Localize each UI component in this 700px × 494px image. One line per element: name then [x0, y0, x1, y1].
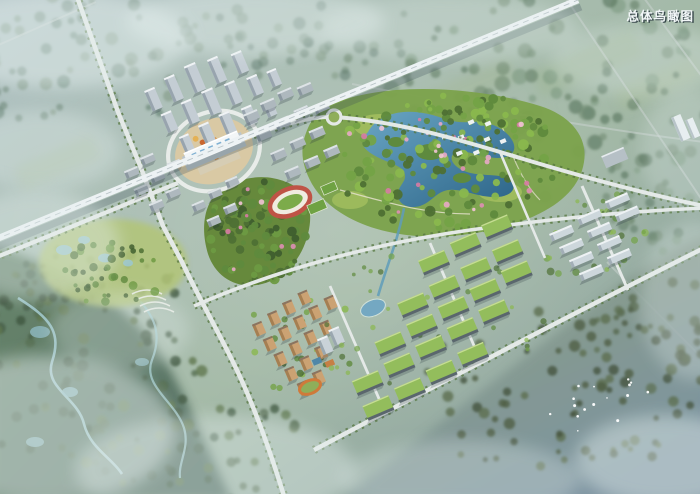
wetland-tree	[596, 382, 606, 392]
tree	[339, 343, 344, 348]
wetland-tree	[472, 375, 478, 381]
view-title-label: 总体鸟瞰图	[626, 9, 694, 24]
blossom-tree	[279, 244, 284, 249]
park-tree	[229, 218, 239, 228]
haze-tree	[496, 62, 509, 75]
wetland-tree	[178, 395, 188, 405]
blossom-tree	[527, 188, 533, 194]
wetland-tree	[668, 396, 679, 407]
park-tree	[236, 260, 244, 268]
haze-tree	[3, 86, 9, 92]
tree	[140, 258, 145, 263]
haze-tree	[634, 167, 640, 173]
haze-tree	[512, 69, 528, 85]
blossom-tree	[259, 199, 265, 205]
park-tree	[513, 134, 519, 140]
park-tree	[211, 208, 216, 213]
bird	[593, 386, 595, 388]
wetland-tree	[556, 449, 561, 454]
blossom-tree	[404, 137, 408, 141]
wetland-tree	[608, 365, 618, 375]
haze-tree	[551, 87, 563, 99]
park-tree	[427, 100, 432, 105]
wetland-tree	[629, 294, 638, 303]
park-tree	[511, 127, 517, 133]
park-tree	[241, 240, 246, 245]
wetland-tree	[556, 348, 562, 354]
park-tree	[344, 190, 350, 196]
blossom-tree	[385, 188, 391, 194]
tree	[555, 270, 562, 277]
haze-tree	[591, 95, 598, 102]
haze-tree	[469, 63, 480, 74]
tree	[151, 258, 156, 263]
park-tree	[264, 216, 272, 224]
wetland-tree	[504, 418, 515, 429]
tree	[491, 325, 496, 330]
haze-tree	[258, 57, 268, 67]
park-tree	[270, 263, 276, 269]
tree	[631, 237, 638, 244]
wetland-tree	[457, 430, 466, 439]
wetland-tree	[589, 318, 597, 326]
wetland-tree	[446, 408, 455, 417]
haze-tree	[630, 0, 640, 10]
tree	[342, 306, 349, 313]
tree	[370, 325, 375, 330]
wetland-tree	[479, 408, 490, 419]
wetland-tree	[189, 357, 197, 365]
tree	[324, 322, 329, 327]
birdseye-scene: 总体鸟瞰图 总体鸟瞰图	[0, 0, 700, 494]
tree	[547, 256, 552, 261]
park-tree	[445, 208, 453, 216]
tree	[335, 365, 339, 369]
wetland-tree	[502, 400, 510, 408]
park-tree	[529, 131, 535, 137]
park-tree	[415, 144, 424, 153]
bird	[627, 378, 629, 380]
blossom-tree	[246, 187, 250, 191]
blossom-tree	[436, 144, 440, 148]
park-tree	[382, 149, 391, 158]
park-tree	[251, 272, 258, 279]
park-tree	[493, 179, 500, 186]
bird	[549, 413, 551, 415]
blossom-tree	[485, 159, 490, 164]
wetland-tree	[521, 392, 529, 400]
park-tree	[424, 118, 430, 124]
park-tree	[490, 210, 498, 218]
wetland-tree	[572, 385, 578, 391]
blossom-tree	[439, 153, 444, 158]
haze-tree	[600, 115, 610, 125]
tree	[139, 248, 144, 253]
park-tree	[535, 118, 542, 125]
park-tree	[440, 93, 446, 99]
haze-tree	[332, 72, 339, 79]
tree	[547, 268, 555, 276]
tree	[119, 251, 126, 258]
blossom-tree	[245, 214, 248, 217]
haze-tree	[529, 95, 537, 103]
blossom-tree	[347, 131, 352, 136]
park-tree	[378, 210, 385, 217]
bird	[583, 408, 586, 411]
park-tree	[292, 235, 300, 243]
tree	[346, 361, 352, 367]
wetland-tree	[613, 329, 619, 335]
park-tree	[485, 102, 494, 111]
park-tree	[236, 245, 245, 254]
park-tree	[549, 175, 555, 181]
wetland-tree	[25, 338, 35, 348]
tree	[388, 253, 394, 259]
park-tree	[417, 107, 423, 113]
blossom-tree	[524, 181, 529, 186]
park-tree	[515, 169, 521, 175]
wetland-tree	[0, 297, 7, 304]
wetland-tree	[574, 320, 585, 331]
mist-patch	[50, 290, 190, 370]
bird	[606, 397, 608, 399]
park-tree	[360, 181, 367, 188]
park-tree	[261, 178, 268, 185]
tree	[251, 349, 258, 356]
park-tree	[518, 177, 525, 184]
blossom-tree	[379, 126, 384, 131]
haze-tree	[286, 57, 294, 65]
haze-tree	[612, 113, 622, 123]
tree	[582, 203, 587, 208]
park-tree	[435, 105, 443, 113]
wetland-tree	[556, 431, 563, 438]
wetland-tree	[602, 352, 612, 362]
park-tree	[410, 171, 416, 177]
haze-tree	[565, 94, 572, 101]
wetland-tree	[593, 367, 601, 375]
aerial-masterplan-rendering: 总体鸟瞰图 总体鸟瞰图	[0, 0, 700, 494]
blossom-tree	[461, 166, 466, 171]
blossom-tree	[434, 150, 437, 153]
haze-tree	[461, 66, 468, 73]
park-tree	[398, 153, 406, 161]
haze-tree	[495, 76, 511, 92]
bird	[626, 394, 629, 397]
park-tree	[497, 119, 506, 128]
tree	[339, 354, 345, 360]
park-tree	[258, 188, 265, 195]
haze-tree	[344, 53, 353, 62]
bird	[572, 397, 575, 400]
park-tree	[499, 172, 506, 179]
wetland-tree	[216, 405, 225, 414]
tree	[510, 305, 514, 309]
wetland-tree	[619, 397, 627, 405]
tree	[378, 269, 384, 275]
park-tree	[538, 178, 543, 183]
park-tree	[441, 125, 447, 131]
park-tree	[505, 201, 512, 208]
wetland-tree	[586, 332, 596, 342]
wetland-tree	[606, 387, 612, 393]
blossom-tree	[239, 201, 243, 205]
bird	[647, 391, 650, 394]
park-tree	[449, 190, 455, 196]
park-tree	[301, 232, 310, 241]
tree	[575, 199, 579, 203]
wetland-tree	[624, 369, 633, 378]
park-tree	[262, 232, 270, 240]
park-tree	[460, 112, 467, 119]
haze-tree	[362, 59, 369, 66]
haze-tree	[56, 104, 63, 111]
wetland-tree	[569, 340, 580, 351]
park-tree	[476, 174, 484, 182]
park-tree	[362, 157, 372, 167]
park-tree	[252, 239, 259, 246]
park-tree	[425, 206, 436, 217]
haze-tree	[340, 70, 351, 81]
blossom-tree	[361, 133, 367, 139]
park-tree	[386, 174, 394, 182]
wetland-tree	[582, 381, 589, 388]
park-tree	[281, 237, 289, 245]
wetland-tree	[534, 307, 544, 317]
wetland-tree	[614, 315, 620, 321]
wetland-tree	[576, 400, 583, 407]
park-tree	[530, 123, 538, 131]
park-tree	[459, 188, 469, 198]
wetland-tree	[281, 410, 291, 420]
park-tree	[206, 235, 215, 244]
park-tree	[219, 230, 225, 236]
wetland-tree	[170, 356, 181, 367]
tree	[251, 312, 257, 318]
bird	[628, 384, 631, 387]
wetland-tree	[605, 375, 613, 383]
blossom-tree	[480, 203, 485, 208]
wetland-tree	[196, 365, 207, 376]
park-tree	[385, 205, 391, 211]
park-tree	[415, 211, 423, 219]
wetland-tree	[442, 391, 453, 402]
park-tree	[444, 217, 455, 228]
park-tree	[421, 163, 427, 169]
bird	[576, 415, 579, 418]
tree	[601, 199, 606, 204]
park-tree	[464, 201, 473, 210]
tree	[277, 385, 283, 391]
wetland-tree	[627, 333, 632, 338]
park-tree	[542, 124, 548, 130]
wetland-tree	[686, 402, 694, 410]
park-tree	[296, 215, 305, 224]
park-tree	[518, 139, 529, 150]
bird	[592, 403, 595, 406]
wetland-tree	[270, 404, 279, 413]
wetland-tree	[487, 429, 495, 437]
park-tree	[491, 193, 499, 201]
park-tree	[251, 222, 258, 229]
park-tree	[500, 96, 506, 102]
tree	[270, 384, 276, 390]
park-tree	[502, 112, 508, 118]
park-tree	[511, 107, 519, 115]
park-tree	[211, 248, 216, 253]
blossom-tree	[486, 155, 492, 161]
park-tree	[385, 135, 390, 140]
blossom-tree	[239, 226, 243, 230]
wetland-tree	[547, 366, 557, 376]
bird	[577, 385, 580, 388]
park-tree	[273, 225, 280, 232]
blossom-tree	[444, 202, 450, 208]
wetland-tree	[604, 339, 612, 347]
haze-tree	[0, 102, 8, 110]
park-tree	[292, 259, 297, 264]
park-tree	[395, 168, 404, 177]
park-tree	[247, 199, 257, 209]
park-tree	[475, 98, 485, 108]
tree	[387, 381, 392, 386]
wetland-tree	[579, 350, 586, 357]
tree	[354, 346, 360, 352]
tree	[130, 248, 136, 254]
wetland-tree	[570, 412, 576, 418]
haze-tree	[578, 105, 594, 121]
wetland-tree	[142, 375, 148, 381]
park-tree	[221, 200, 227, 206]
park-tree	[259, 243, 265, 249]
park-tree	[463, 95, 470, 102]
wetland-tree	[492, 416, 498, 422]
park-tree	[434, 219, 441, 226]
tree	[352, 273, 356, 277]
wetland-tree	[16, 316, 25, 325]
park-tree	[476, 115, 483, 122]
haze-tree	[316, 51, 327, 62]
tree	[525, 347, 529, 351]
wetland-tree	[629, 302, 639, 312]
wetland-tree	[46, 313, 51, 318]
blossom-tree	[416, 183, 421, 188]
park-tree	[447, 109, 453, 115]
park-tree	[428, 107, 432, 111]
park-tree	[387, 160, 395, 168]
tree	[524, 338, 528, 342]
wetland-tree	[614, 306, 623, 315]
park-tree	[476, 135, 483, 142]
park-tree	[346, 171, 356, 181]
park-tree	[439, 167, 446, 174]
park-tree	[254, 264, 262, 272]
tree	[120, 246, 125, 251]
blossom-tree	[439, 122, 443, 126]
park-tree	[288, 249, 293, 254]
blossom-tree	[225, 229, 230, 234]
haze-tree	[630, 225, 638, 233]
tree	[540, 318, 546, 324]
tree	[368, 289, 372, 293]
bird	[577, 430, 579, 432]
haze-tree	[622, 139, 628, 145]
wetland-tree	[622, 320, 628, 326]
bird	[616, 419, 619, 422]
haze-tree	[621, 171, 629, 179]
bird	[573, 404, 576, 407]
tree	[642, 230, 646, 234]
blossom-tree	[397, 210, 401, 214]
park-tree	[494, 129, 500, 135]
wetland-tree	[594, 347, 600, 353]
haze-tree	[645, 198, 655, 208]
park-tree	[353, 122, 360, 129]
park-tree	[471, 184, 480, 193]
park-tree	[256, 211, 265, 220]
wetland-tree	[503, 388, 511, 396]
blossom-tree	[291, 244, 296, 249]
wetland-tree	[663, 374, 672, 383]
park-tree	[406, 156, 414, 164]
park-tree	[525, 194, 531, 200]
tree	[111, 273, 119, 281]
haze-tree	[608, 166, 615, 173]
park-tree	[389, 216, 397, 224]
tree	[129, 281, 138, 290]
park-tree	[459, 159, 466, 166]
tree	[368, 269, 372, 273]
tree	[362, 265, 366, 269]
park-tree	[468, 156, 478, 166]
park-tree	[270, 244, 278, 252]
haze-tree	[599, 133, 606, 140]
tree	[121, 276, 128, 283]
park-tree	[258, 251, 265, 258]
park-tree	[362, 174, 369, 181]
tree	[386, 307, 390, 311]
tree	[304, 309, 310, 315]
wetland-tree	[460, 377, 467, 384]
blossom-tree	[519, 122, 524, 127]
wetland-tree	[601, 314, 611, 324]
park-tree	[405, 103, 410, 108]
blossom-tree	[472, 208, 475, 211]
bird	[630, 382, 632, 384]
park-tree	[447, 118, 454, 125]
blossom-tree	[418, 118, 421, 121]
park-tree	[401, 130, 406, 135]
tree	[346, 371, 351, 376]
tree	[329, 365, 335, 371]
blossom-tree	[232, 267, 236, 271]
park-tree	[342, 152, 347, 157]
park-tree	[428, 189, 436, 197]
plaza-tree	[193, 136, 199, 142]
tree	[297, 370, 304, 377]
